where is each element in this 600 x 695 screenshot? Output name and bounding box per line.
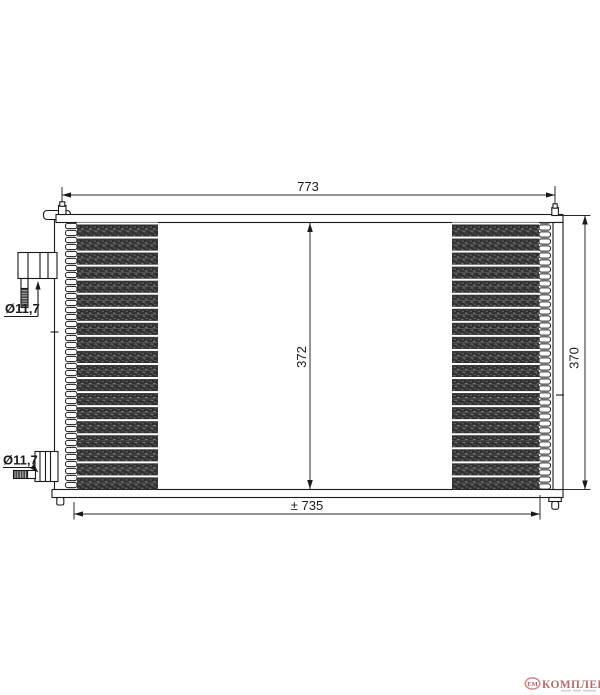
mounting-pin-top-right xyxy=(552,204,559,216)
upper-fitting-block xyxy=(18,253,57,279)
fin-edge-left xyxy=(63,223,77,490)
core-left-section xyxy=(77,223,158,490)
lower-fitting-stub-thread xyxy=(14,471,28,479)
dimension-core-width: ± 735 xyxy=(74,495,540,520)
dimension-overall-width: 773 xyxy=(62,179,555,204)
dim-overall-width-label: 773 xyxy=(297,179,319,194)
arrowhead xyxy=(582,481,588,490)
arrowhead xyxy=(546,192,555,197)
arrowhead xyxy=(62,192,71,197)
upper-diameter-label: Ø11,7 xyxy=(5,301,40,316)
lower-diameter-callout: Ø11,7 xyxy=(3,453,39,473)
upper-fitting-stud-neck xyxy=(21,279,28,289)
logo-badge-label: ЕМ xyxy=(527,681,537,688)
dim-core-height-label: 372 xyxy=(294,346,309,368)
logo-brand-label: КОМПЛЕКТ xyxy=(542,679,600,691)
lower-fitting-block xyxy=(35,452,58,482)
arrowhead xyxy=(35,281,40,290)
top-header-bar xyxy=(56,215,563,223)
watermark-logo: ЕМ КОМПЛЕКТ xyxy=(525,678,600,692)
dim-core-width-label: ± 735 xyxy=(291,498,323,513)
arrowhead xyxy=(531,511,540,516)
bottom-header-bar xyxy=(52,490,563,498)
arrowhead xyxy=(307,223,313,232)
dimension-core-height: 372 xyxy=(294,223,313,489)
core-right-section xyxy=(452,223,539,490)
arrowhead xyxy=(307,480,313,489)
mounting-pin-bottom-left xyxy=(57,498,64,506)
dim-overall-height-label: 370 xyxy=(567,347,582,369)
lower-fitting-stub-neck xyxy=(28,471,36,479)
logo-tagline-strip xyxy=(561,690,596,692)
mounting-pin-top-left xyxy=(59,202,67,215)
arrowhead xyxy=(582,216,588,225)
mounting-pin-bottom-right xyxy=(549,498,562,510)
right-tank xyxy=(553,223,563,490)
arrowhead xyxy=(74,511,83,516)
page: 773 ± 735 372 370 Ø11,7 Ø11,7 xyxy=(0,0,600,695)
lower-diameter-label: Ø11,7 xyxy=(3,453,38,468)
condenser-diagram: 773 ± 735 372 370 Ø11,7 Ø11,7 xyxy=(0,0,600,695)
fin-edge-right xyxy=(539,223,553,490)
